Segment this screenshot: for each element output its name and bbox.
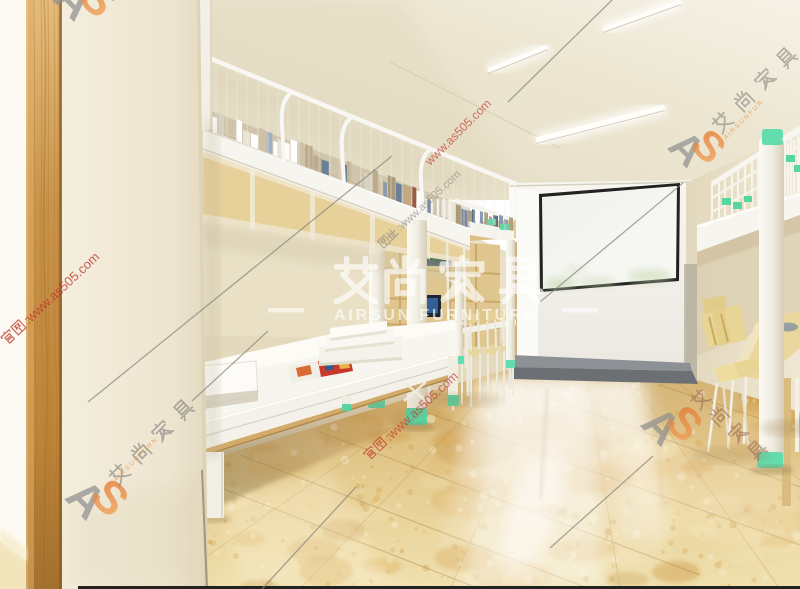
svg-text:AIRSUN FURNITURE: AIRSUN FURNITURE <box>334 307 537 324</box>
